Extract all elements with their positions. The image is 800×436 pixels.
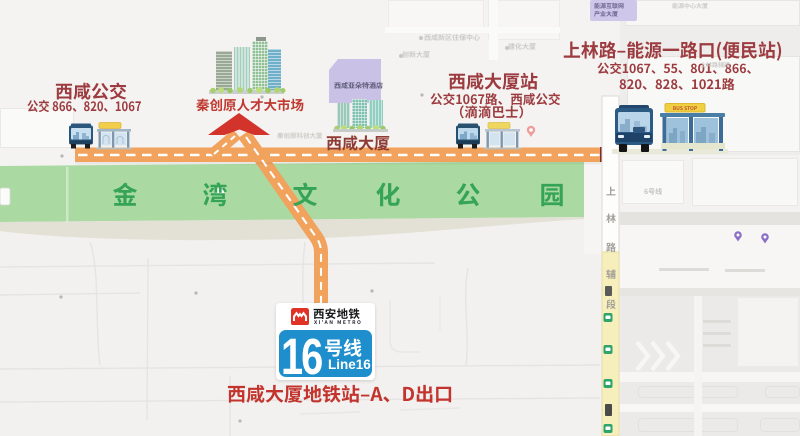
svg-text:BUS STOP: BUS STOP [673, 105, 698, 112]
